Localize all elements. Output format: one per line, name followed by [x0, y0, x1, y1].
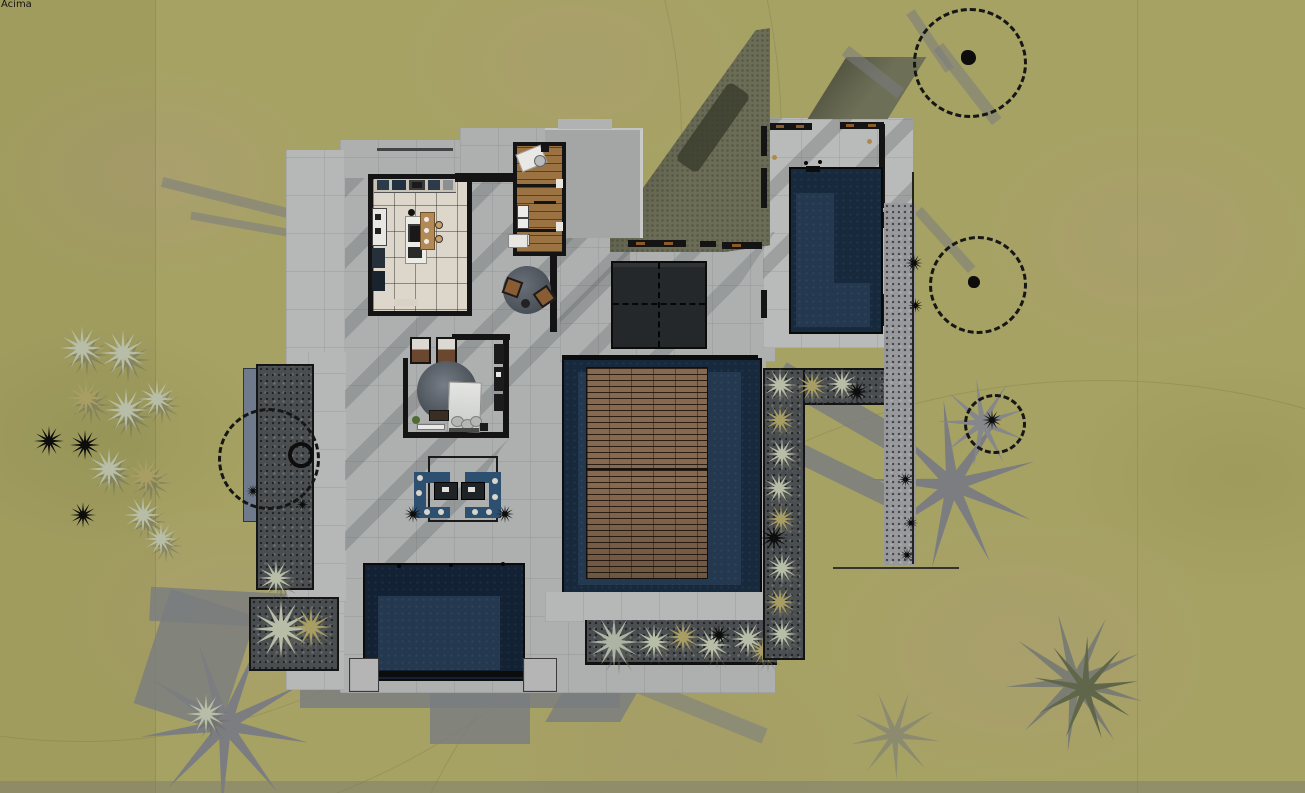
agave-plant: [126, 456, 166, 496]
agave-plant: [290, 606, 332, 648]
door-leaf: [556, 179, 563, 188]
pergola-beam: [722, 242, 762, 249]
kitchen-appliance: [377, 180, 389, 190]
scene-label: Acima: [1, 0, 32, 10]
cooktop: [409, 180, 425, 190]
bar-stool: [435, 235, 443, 243]
pool-pillar: [349, 658, 379, 692]
desk-chair: [534, 155, 546, 167]
partition-wall: [516, 184, 556, 187]
pool-anchor-dot: [449, 563, 453, 567]
black-plant: [845, 380, 869, 404]
agave-plant: [186, 694, 226, 734]
pergola-wood-insert: [664, 242, 673, 245]
agave-plant: [764, 586, 796, 618]
black-plant: [982, 410, 1002, 430]
floor-lamp: [404, 505, 422, 523]
pool-anchor-dot: [818, 160, 822, 164]
black-plant: [70, 502, 96, 528]
sofa-pillow: [424, 509, 430, 515]
terrace-shadow-step: [430, 688, 530, 744]
agave-plant: [258, 560, 294, 596]
site-plan-canvas: Acima: [0, 0, 1305, 793]
headboard: [449, 428, 479, 432]
tree-canopy: [218, 408, 320, 510]
floor-lamp: [496, 505, 514, 523]
pergola-beam: [700, 241, 716, 247]
pool-anchor-dot: [501, 562, 505, 566]
pergola-beam: [770, 123, 812, 130]
partition-wall: [534, 201, 556, 204]
bedroom-chair: [410, 337, 431, 364]
sofa-pillow: [438, 509, 444, 515]
sofa-pillow: [416, 490, 422, 496]
black-plant: [760, 524, 788, 552]
lower-pool-shallow: [378, 596, 500, 670]
pool-anchor-dot: [804, 161, 808, 165]
door-leaf: [556, 222, 563, 231]
plate: [424, 217, 429, 222]
palm-tree: [1021, 629, 1149, 749]
pool-deck: [586, 367, 708, 579]
bedroom-wall: [403, 432, 509, 438]
table-item: [442, 487, 449, 492]
toilet: [517, 218, 529, 229]
pergola-wood-insert: [868, 124, 876, 127]
tree-trunk: [961, 50, 976, 65]
agave-plant: [588, 616, 640, 668]
potted-plant: [412, 416, 420, 424]
sofa-pillow: [486, 509, 492, 515]
wall-segment: [761, 126, 767, 156]
partition-wall: [516, 229, 556, 232]
skylight-dash-line: [658, 263, 660, 347]
deck-shading: [587, 368, 707, 578]
black-plant: [905, 254, 923, 272]
agave-plant: [763, 368, 797, 402]
agave-plant: [88, 448, 130, 490]
property-line: [833, 567, 959, 569]
door-pivot-dot: [772, 155, 777, 160]
roof-slab-step: [558, 119, 612, 129]
pergola-beam: [628, 240, 686, 247]
agave-plant: [60, 326, 104, 370]
agave-plant: [100, 330, 146, 376]
bedroom-wall: [452, 334, 510, 340]
sofa-pillow: [492, 494, 498, 500]
kitchen-appliance: [428, 180, 440, 190]
pergola-beam: [840, 122, 884, 129]
freezer: [372, 271, 385, 291]
washbasin: [517, 205, 529, 218]
agave-plant: [766, 552, 798, 584]
wall-segment: [761, 168, 767, 208]
wardrobe-unit: [494, 344, 504, 364]
nightstand: [480, 423, 488, 431]
kitchen-door-gap: [394, 299, 418, 306]
garden-wall-line: [912, 172, 914, 564]
black-plant: [34, 426, 64, 456]
bedroom-chair: [436, 337, 457, 364]
bar-stool: [435, 221, 443, 229]
kettle: [408, 209, 415, 216]
tree-trunk: [968, 276, 980, 288]
pergola-wood-insert: [732, 244, 741, 247]
pergola-wood-insert: [796, 125, 804, 128]
wall-segment: [761, 290, 767, 318]
wardrobe-unit: [494, 394, 504, 411]
black-plant: [900, 548, 914, 562]
pool-edge-line: [562, 355, 758, 358]
kitchen-appliance: [392, 180, 406, 190]
sofa-pillow: [417, 475, 423, 481]
agave-plant: [66, 378, 106, 418]
kitchen-sink: [443, 180, 453, 190]
wardrobe-handle: [496, 372, 501, 377]
bedroom-wall: [403, 358, 408, 438]
sofa-pillow: [492, 478, 498, 484]
door-pivot-dot: [867, 139, 872, 144]
agave-plant: [763, 472, 795, 504]
plate: [424, 239, 429, 244]
skylight: [611, 261, 707, 349]
agave-plant: [138, 380, 176, 418]
sofa-pillow: [472, 509, 478, 515]
black-plant: [898, 472, 913, 487]
fridge: [372, 248, 385, 268]
pool-edge-line: [374, 671, 524, 677]
roof-vent-line: [377, 148, 453, 151]
black-plant: [904, 516, 918, 530]
lap-pool-shallow: [796, 193, 834, 327]
desk-lamp: [541, 146, 549, 152]
pergola-wood-insert: [846, 124, 854, 127]
table-item: [468, 487, 475, 492]
agave-plant: [766, 438, 798, 470]
garden-bed-curb: [545, 592, 775, 622]
wall-segment: [455, 173, 517, 182]
agave-plant: [796, 370, 828, 402]
black-plant: [296, 498, 309, 511]
pool-pillar: [523, 658, 557, 692]
agave-plant: [764, 404, 796, 436]
oven-knob: [375, 214, 381, 220]
low-shelf: [417, 424, 445, 430]
black-plant: [708, 624, 730, 646]
wardrobe-unit: [494, 367, 504, 391]
pergola-wood-insert: [776, 125, 784, 128]
plate: [424, 228, 429, 233]
agave-plant: [766, 618, 798, 650]
side-table: [521, 299, 530, 308]
black-plant: [908, 298, 923, 313]
black-plant: [246, 484, 260, 498]
pool-anchor-dot: [397, 564, 401, 568]
pergola-wood-insert: [636, 242, 645, 245]
dresser: [429, 410, 449, 421]
lap-pool-shallow: [834, 283, 870, 327]
entry-landing: [508, 234, 528, 248]
agave-plant: [144, 522, 178, 556]
lap-pool-step: [806, 166, 820, 172]
oven-knob: [375, 228, 381, 234]
